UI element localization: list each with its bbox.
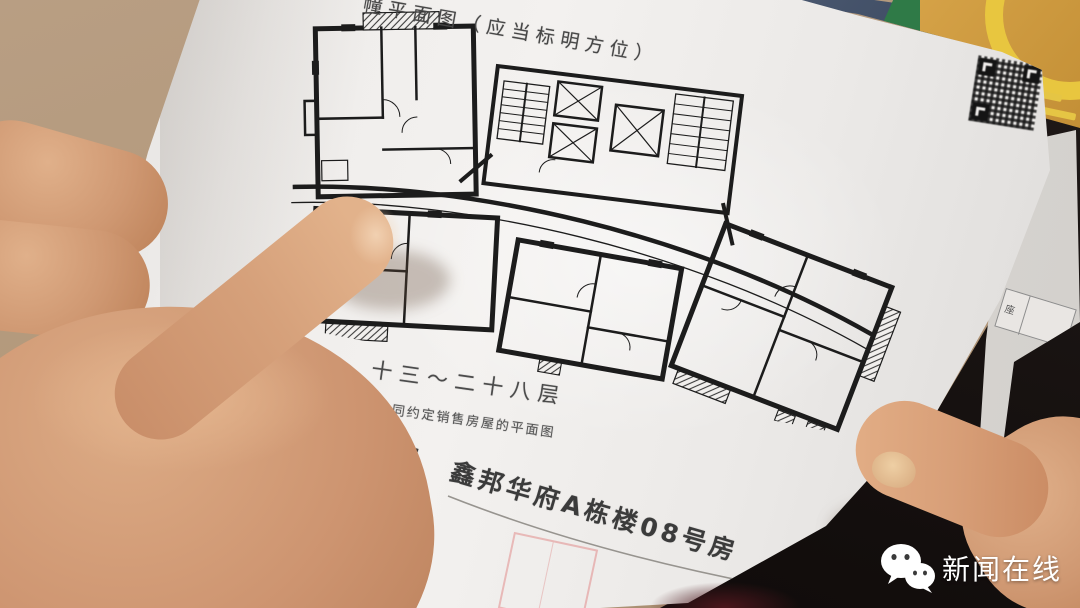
wechat-icon bbox=[880, 542, 938, 594]
fingertip-highlight bbox=[350, 205, 402, 265]
red-seal-stamp bbox=[498, 532, 598, 608]
photo-scene: 附件 （应 （分 座 bbox=[0, 0, 1080, 608]
qr-code bbox=[968, 55, 1044, 131]
watermark: 新闻在线 bbox=[880, 540, 1080, 600]
table-divider bbox=[1018, 296, 1031, 335]
qr-finder bbox=[971, 102, 990, 121]
qr-finder bbox=[978, 58, 997, 77]
watermark-text: 新闻在线 bbox=[942, 548, 1062, 588]
table-cell-label: 座 bbox=[1003, 300, 1017, 317]
